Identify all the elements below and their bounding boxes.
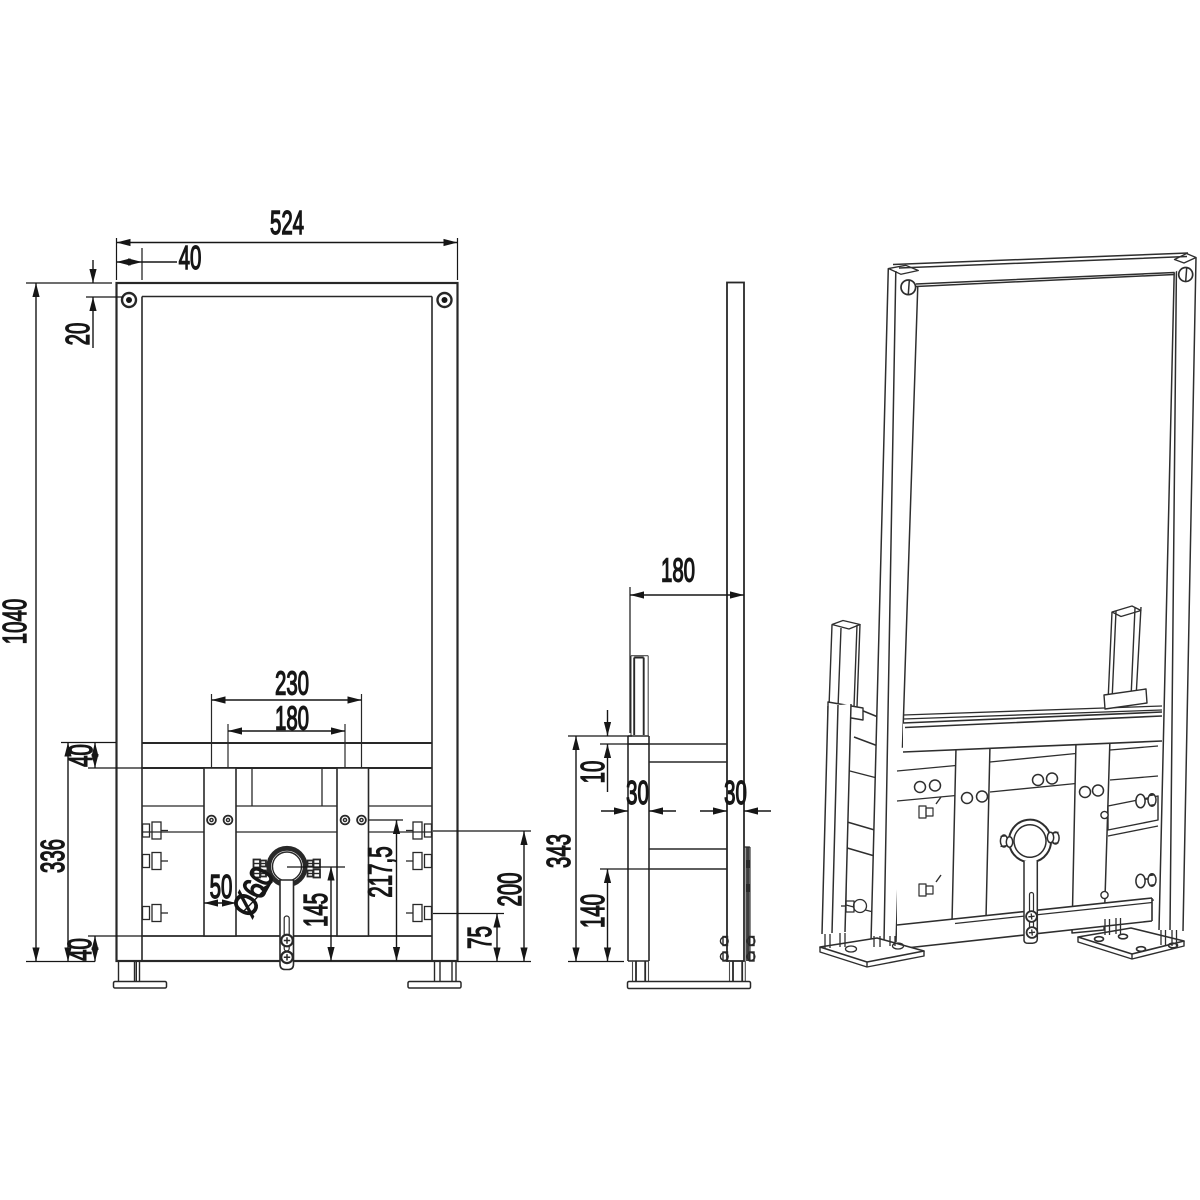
svg-text:336: 336 xyxy=(34,839,71,873)
svg-text:145: 145 xyxy=(297,893,334,927)
svg-text:20: 20 xyxy=(59,323,96,346)
svg-text:40: 40 xyxy=(179,239,202,276)
svg-text:180: 180 xyxy=(275,699,309,736)
svg-text:75: 75 xyxy=(461,926,498,949)
svg-text:343: 343 xyxy=(540,834,577,868)
svg-text:30: 30 xyxy=(626,774,649,811)
svg-text:30: 30 xyxy=(724,774,747,811)
svg-text:200: 200 xyxy=(491,872,528,906)
svg-text:10: 10 xyxy=(574,761,611,784)
svg-text:40: 40 xyxy=(61,938,98,961)
svg-text:524: 524 xyxy=(270,204,304,241)
svg-text:180: 180 xyxy=(661,551,695,588)
svg-text:140: 140 xyxy=(574,894,611,928)
svg-text:217,5: 217,5 xyxy=(361,846,398,897)
svg-text:1040: 1040 xyxy=(0,599,33,644)
svg-text:230: 230 xyxy=(275,664,309,701)
